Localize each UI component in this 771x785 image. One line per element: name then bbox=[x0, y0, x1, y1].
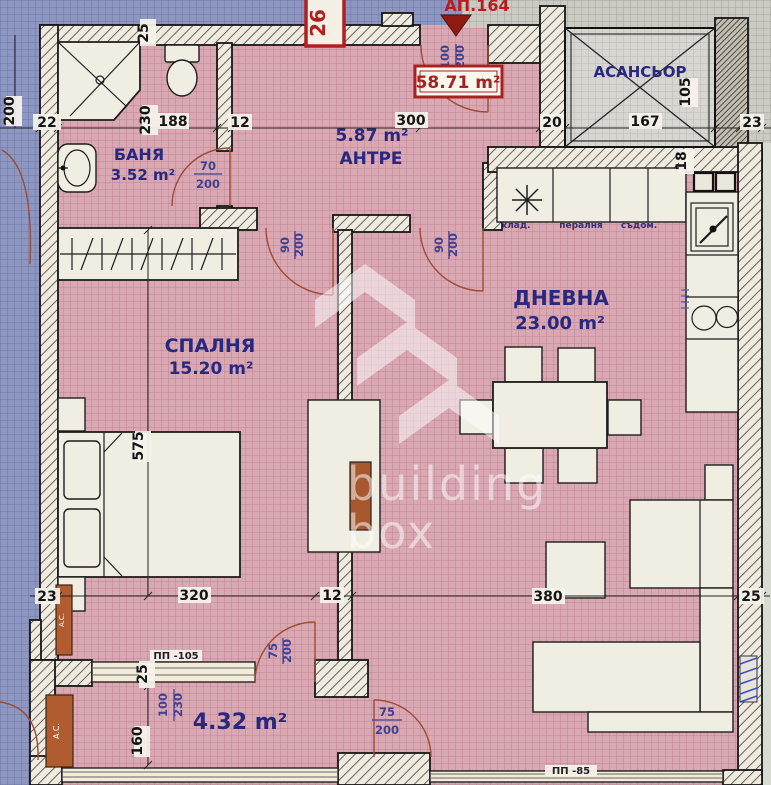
chair bbox=[558, 348, 595, 382]
kitchen-fridge-label: хлад. bbox=[501, 221, 530, 231]
terrace-window-label: ПП -105 bbox=[153, 651, 198, 662]
wall-corridor-foot bbox=[315, 660, 368, 697]
room-label-hall: АНТРЕ bbox=[339, 149, 402, 169]
dim-bedroom-width: 320 bbox=[179, 588, 208, 604]
dim-bed-length: 575 bbox=[131, 431, 147, 460]
unit-tag-value: 26 bbox=[306, 9, 330, 37]
living-east-window bbox=[740, 656, 757, 702]
dim-bottom-wall-left: 23 bbox=[37, 589, 56, 605]
dim-wall-mid: 12 bbox=[230, 115, 249, 131]
switch-box-1 bbox=[694, 173, 713, 191]
watermark-line1: building bbox=[347, 457, 547, 511]
dim-kitchen-niche: 18 bbox=[674, 151, 690, 170]
floor-plan-page: A.C. A.C. bbox=[0, 0, 771, 785]
sink bbox=[58, 144, 96, 192]
dim-bath-width: 230 bbox=[138, 105, 154, 134]
terrace-south-window bbox=[62, 768, 338, 782]
door-bedroom-terrace-h: 200 bbox=[280, 639, 294, 663]
wall-top-step bbox=[382, 13, 413, 26]
dim-lift-depth: 105 bbox=[678, 77, 694, 106]
switch-box-2 bbox=[716, 173, 735, 191]
kitchen-washer-label: пералня bbox=[559, 221, 603, 231]
door-bedroom-h: 200 bbox=[292, 233, 306, 257]
floor-plan: A.C. A.C. bbox=[0, 0, 771, 785]
terrace-window-h: 230 bbox=[171, 693, 185, 717]
door-terrace-living-w: 75 bbox=[379, 705, 395, 719]
dim-bottom-wall-mid: 12 bbox=[322, 588, 341, 604]
dim-neighbor: 200 bbox=[2, 96, 18, 125]
wall-bathroom-east bbox=[217, 43, 232, 151]
door-living-h: 200 bbox=[446, 233, 460, 257]
dim-wall-lift: 20 bbox=[542, 115, 562, 131]
room-label-living: ДНЕВНА bbox=[513, 286, 609, 310]
door-living-w: 90 bbox=[432, 237, 446, 253]
dim-wall-right-top: 23 bbox=[742, 115, 761, 131]
terrace-window-w: 100 bbox=[156, 693, 170, 717]
kitchen-counter-right bbox=[681, 173, 738, 412]
room-area-hall: 5.87 m² bbox=[335, 126, 408, 146]
room-label-elevator: АСАНСЬОР bbox=[594, 63, 687, 81]
bedroom-terrace-window bbox=[92, 662, 255, 682]
dim-bottom-wall-right: 25 bbox=[741, 589, 760, 605]
chair bbox=[558, 448, 597, 483]
wall-terrace-bottom-mid bbox=[338, 753, 430, 785]
watermark-line2: box bbox=[347, 505, 436, 559]
wall-entrance-block bbox=[488, 25, 540, 63]
dim-top-wall: 25 bbox=[136, 23, 152, 42]
room-label-bathroom: БАНЯ bbox=[114, 145, 164, 164]
dim-living-width: 380 bbox=[533, 589, 562, 605]
door-bedroom-w: 90 bbox=[278, 237, 292, 253]
wall-left-step bbox=[30, 620, 41, 660]
room-area-living: 23.00 m² bbox=[515, 313, 605, 334]
room-label-bedroom: СПАЛНЯ bbox=[165, 335, 256, 357]
total-area-box: 58.71 m² bbox=[415, 66, 502, 97]
door-bathroom-h: 200 bbox=[196, 177, 220, 191]
wall-hall-south-left bbox=[200, 208, 257, 230]
ac-unit-1-label: A.C. bbox=[58, 613, 66, 627]
wall-living-bottom-right bbox=[723, 770, 762, 785]
room-area-terrace: 4.32 m² bbox=[193, 710, 288, 735]
unit-tag: 26 bbox=[306, 0, 344, 46]
dim-terrace-height: 160 bbox=[130, 726, 146, 755]
room-area-bathroom: 3.52 m² bbox=[111, 166, 175, 184]
dim-terrace-sill: 25 bbox=[135, 664, 151, 683]
door-terrace-living-h: 200 bbox=[375, 723, 399, 737]
kitchen-counter-top bbox=[497, 168, 686, 222]
ac-unit-2-label: A.C. bbox=[52, 723, 61, 739]
hob-symbol bbox=[512, 185, 542, 215]
toilet bbox=[165, 45, 199, 96]
total-area-value: 58.71 m² bbox=[416, 73, 501, 93]
dining-table bbox=[493, 382, 607, 448]
chair bbox=[505, 347, 542, 382]
door-bathroom-w: 70 bbox=[200, 159, 216, 173]
dim-lift-width: 167 bbox=[630, 114, 659, 130]
neighbor-strip bbox=[762, 143, 771, 785]
chair bbox=[608, 400, 641, 435]
dim-wall-left: 22 bbox=[37, 115, 56, 131]
room-area-bedroom: 15.20 m² bbox=[169, 359, 254, 379]
living-window-label: ПП -85 bbox=[552, 766, 590, 777]
nightstand-top bbox=[58, 398, 85, 431]
apartment-number: АП.164 bbox=[444, 0, 509, 15]
kitchen-dishwasher-label: съдом. bbox=[621, 221, 657, 231]
door-bedroom-terrace-w: 75 bbox=[266, 643, 280, 659]
dim-bath-niche: 188 bbox=[158, 114, 187, 130]
